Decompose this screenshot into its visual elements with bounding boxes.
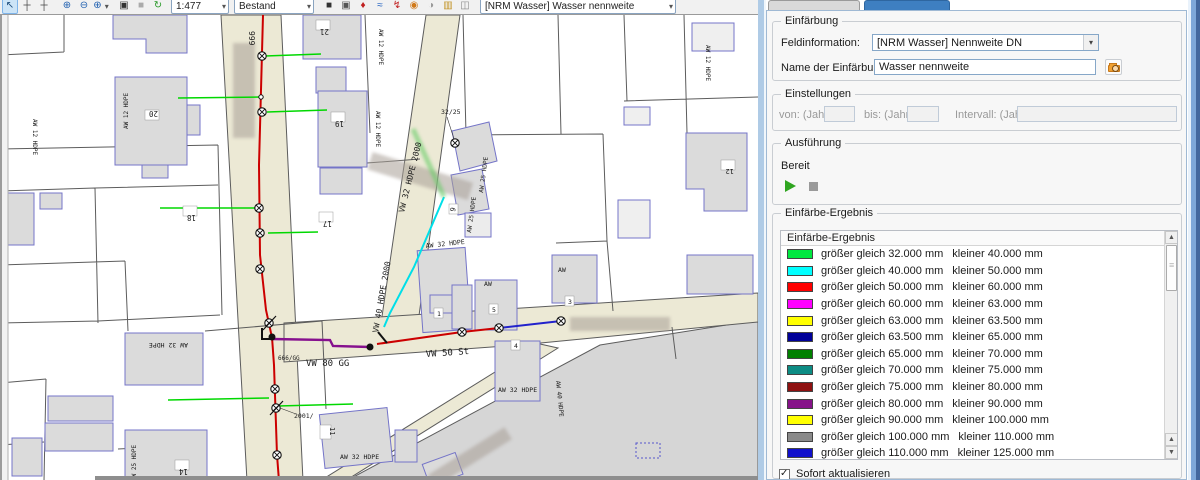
map-label: AW 12 HDPE xyxy=(123,92,130,129)
range-gte: größer gleich 63.500 mm xyxy=(821,331,943,343)
range-gte: größer gleich 50.000 mm xyxy=(821,281,943,293)
color-swatch xyxy=(787,399,813,409)
scroll-up-icon[interactable]: ▲ xyxy=(1165,231,1178,244)
range-gte: größer gleich 90.000 mm xyxy=(821,414,943,426)
range-lt: kleiner 40.000 mm xyxy=(952,248,1043,260)
zoom-menu-button[interactable]: ⊕▾ xyxy=(93,0,109,14)
stop-icon: ■ xyxy=(138,1,144,11)
range-lt: kleiner 75.000 mm xyxy=(952,364,1043,376)
legend-row[interactable]: größer gleich 50.000 mmkleiner 60.000 mm xyxy=(781,279,1164,296)
bis-label: bis: (Jahr) xyxy=(864,109,913,121)
folder-search-icon xyxy=(1108,65,1120,72)
zoom-out-icon: ⊖ xyxy=(80,1,88,11)
temperature-button[interactable]: ♦ xyxy=(355,0,371,14)
waves-icon: ≈ xyxy=(377,1,383,11)
color-swatch xyxy=(787,448,813,458)
legend-row[interactable]: größer gleich 63.500 mmkleiner 65.000 mm xyxy=(781,329,1164,346)
layer-combobox[interactable]: [NRM Wasser] Wasser nennweite▾ xyxy=(480,0,676,14)
range-lt: kleiner 80.000 mm xyxy=(952,381,1043,393)
range-lt: kleiner 100.000 mm xyxy=(952,414,1049,426)
result-list: Einfärbe-Ergebnis größer gleich 32.000 m… xyxy=(780,230,1178,460)
group-ergebnis: Einfärbe-Ergebnis Einfärbe-Ergebnis größ… xyxy=(772,213,1182,479)
map-label: AW xyxy=(484,280,492,288)
range-gte: größer gleich 100.000 mm xyxy=(821,431,949,443)
checkbox-checked-icon[interactable] xyxy=(779,469,790,480)
zoom-in-button[interactable]: ⊕ xyxy=(59,0,75,14)
color-swatch xyxy=(787,249,813,259)
dropdown-arrow-icon: ▾ xyxy=(669,2,673,11)
map-label: 3 xyxy=(568,298,572,306)
map-left-edge xyxy=(0,15,2,480)
map-label: AW xyxy=(558,266,566,274)
snapshot-icon: ■ xyxy=(326,1,332,11)
map-label: AW 12 HDPE xyxy=(31,119,38,156)
mode-value: Bestand xyxy=(239,1,304,12)
map-label: 5 xyxy=(492,306,496,314)
users-button[interactable]: ◫ xyxy=(457,0,473,14)
range-lt: kleiner 90.000 mm xyxy=(952,398,1043,410)
tab-inactive[interactable] xyxy=(768,0,860,10)
color-swatch xyxy=(787,299,813,309)
map-label: 20 xyxy=(148,109,158,118)
range-gte: größer gleich 65.000 mm xyxy=(821,348,943,360)
legend-row[interactable]: größer gleich 100.000 mmkleiner 110.000 … xyxy=(781,429,1164,446)
refresh-icon: ↻ xyxy=(154,1,162,11)
legend-row[interactable]: größer gleich 65.000 mmkleiner 70.000 mm xyxy=(781,346,1164,363)
scale-combobox[interactable]: 1:477▾ xyxy=(171,0,229,14)
color-swatch xyxy=(787,316,813,326)
scroll-down-icon[interactable]: ▼ xyxy=(1165,446,1178,459)
dropdown-arrow-icon[interactable]: ▾ xyxy=(1083,35,1098,50)
range-lt: kleiner 60.000 mm xyxy=(952,281,1043,293)
range-gte: größer gleich 60.000 mm xyxy=(821,298,943,310)
layer-value: [NRM Wasser] Wasser nennweite xyxy=(485,1,666,12)
color-swatch xyxy=(787,266,813,276)
map-label: 2001/ xyxy=(294,412,314,420)
map-label: 14 xyxy=(178,467,188,476)
legend-row[interactable]: größer gleich 63.000 mmkleiner 63.500 mm xyxy=(781,312,1164,329)
range-gte: größer gleich 75.000 mm xyxy=(821,381,943,393)
dropdown-arrow-icon: ▾ xyxy=(222,2,226,11)
columns-icon: ▥ xyxy=(443,1,452,11)
camera-button[interactable]: ▣ xyxy=(338,0,354,14)
info-button[interactable]: ▣ xyxy=(116,0,132,14)
pan-icon: ┼ xyxy=(23,1,30,11)
map-label: AW 32 HDPE xyxy=(498,386,537,394)
splitter[interactable] xyxy=(758,0,766,480)
camera-icon: ▣ xyxy=(341,1,350,11)
range-gte: größer gleich 80.000 mm xyxy=(821,398,943,410)
crosshair-icon: ┼ xyxy=(40,1,47,11)
name-field[interactable]: Wasser nennweite xyxy=(874,59,1096,75)
legend-row[interactable]: größer gleich 40.000 mmkleiner 50.000 mm xyxy=(781,263,1164,280)
app-window: ↖ ┼ ┼ ⊕ ⊖ ⊕▾ ▣ ■ ↻ 1:477▾ Bestand▾ ■ ▣ ♦… xyxy=(0,0,1200,480)
range-gte: größer gleich 40.000 mm xyxy=(821,265,943,277)
von-field[interactable] xyxy=(824,106,855,122)
window-edge xyxy=(1188,0,1200,480)
legend-row[interactable]: größer gleich 90.000 mmkleiner 100.000 m… xyxy=(781,412,1164,429)
range-lt: kleiner 63.500 mm xyxy=(952,315,1043,327)
legend-row[interactable]: größer gleich 110.000 mmkleiner 125.000 … xyxy=(781,445,1164,460)
range-gte: größer gleich 32.000 mm xyxy=(821,248,943,260)
map-label: 4 xyxy=(514,342,518,350)
group-einstellungen: Einstellungen von: (Jahr) bis: (Jahr) In… xyxy=(772,94,1182,131)
coloring-panel: Einfärbung Feldinformation: [NRM Wasser]… xyxy=(766,10,1187,480)
map-horizontal-scrollbar[interactable] xyxy=(95,476,758,480)
legend-row[interactable]: größer gleich 60.000 mmkleiner 63.000 mm xyxy=(781,296,1164,313)
map-label: AW 12 HDPE xyxy=(374,111,381,148)
refresh-button[interactable]: ↻ xyxy=(150,0,166,14)
map-label: 12 xyxy=(726,167,734,175)
dropdown-arrow-icon: ▾ xyxy=(307,2,311,11)
feldinformation-combobox[interactable]: [NRM Wasser] Nennweite DN ▾ xyxy=(872,34,1099,51)
status-text: Bereit xyxy=(781,160,810,172)
feldinformation-value: [NRM Wasser] Nennweite DN xyxy=(873,37,1083,49)
run-button[interactable] xyxy=(785,180,796,192)
color-swatch xyxy=(787,282,813,292)
water-layer-button[interactable]: ≈ xyxy=(372,0,388,14)
palette-button[interactable]: ◑ xyxy=(423,0,439,14)
map-viewport: 999 21 AW 12 HDPE AW 12 HDPE 20 19 AW 12… xyxy=(0,14,758,480)
result-rows: größer gleich 32.000 mmkleiner 40.000 mm… xyxy=(781,246,1164,460)
map-label: AW 25 HDPE xyxy=(131,444,138,480)
map-label: 11 xyxy=(328,427,336,435)
map-label: 21 xyxy=(320,27,329,36)
color-swatch xyxy=(787,382,813,392)
color-swatch xyxy=(787,349,813,359)
group-title: Ausführung xyxy=(781,137,845,149)
map-label: AW 12 HDPE xyxy=(377,29,384,66)
crosshair-tool-button[interactable]: ┼ xyxy=(36,0,52,14)
browse-colorings-button[interactable] xyxy=(1105,59,1122,75)
users-icon: ◫ xyxy=(460,1,469,11)
scroll-up-icon[interactable]: ▲ xyxy=(1165,433,1178,446)
map-label: 17 xyxy=(323,219,332,228)
range-lt: kleiner 65.000 mm xyxy=(952,331,1043,343)
sofort-aktualisieren-label: Sofort aktualisieren xyxy=(796,468,890,480)
legend-row[interactable]: größer gleich 32.000 mmkleiner 40.000 mm xyxy=(781,246,1164,263)
map-label: 18 xyxy=(186,213,196,222)
droplet-icon: ♦ xyxy=(360,1,365,11)
color-swatch xyxy=(787,365,813,375)
map-label: 999 xyxy=(247,31,256,46)
snapshot-button[interactable]: ■ xyxy=(321,0,337,14)
map-label: AW 12 HDPE xyxy=(704,45,711,82)
group-ausfuehrung: Ausführung Bereit xyxy=(772,143,1182,205)
color-swatch xyxy=(787,332,813,342)
range-lt: kleiner 110.000 mm xyxy=(958,431,1054,443)
range-lt: kleiner 125.000 mm xyxy=(958,447,1055,459)
map-label: AW 32 HDPE xyxy=(149,341,188,349)
map-toolbar: ↖ ┼ ┼ ⊕ ⊖ ⊕▾ ▣ ■ ↻ 1:477▾ Bestand▾ ■ ▣ ♦… xyxy=(0,0,758,14)
name-label: Name der Einfärbung: xyxy=(781,62,889,74)
legend-button[interactable]: ▥ xyxy=(440,0,456,14)
color-swatch xyxy=(787,415,813,425)
map-label: 32/25 xyxy=(441,108,461,116)
map-label: VW 80 GG xyxy=(306,359,349,369)
color-swatch xyxy=(787,432,813,442)
range-gte: größer gleich 70.000 mm xyxy=(821,364,943,376)
group-title: Einstellungen xyxy=(781,88,855,100)
globe-button[interactable]: ◉ xyxy=(406,0,422,14)
map-left-strip xyxy=(2,15,8,480)
mode-combobox[interactable]: Bestand▾ xyxy=(234,0,314,14)
result-list-header: Einfärbe-Ergebnis xyxy=(781,231,1164,246)
legend-row[interactable]: größer gleich 70.000 mmkleiner 75.000 mm xyxy=(781,362,1164,379)
bis-field[interactable] xyxy=(907,106,939,122)
map-label: 666/GG xyxy=(278,355,300,362)
zoom-in-icon: ⊕ xyxy=(63,1,71,11)
scroll-thumb[interactable] xyxy=(1166,245,1177,291)
group-title: Einfärbe-Ergebnis xyxy=(781,207,877,219)
map-label: AW 32 HDPE xyxy=(340,453,379,461)
cursor-icon: ↖ xyxy=(6,1,14,11)
scale-value: 1:477 xyxy=(176,1,219,12)
range-gte: größer gleich 63.000 mm xyxy=(821,315,943,327)
info-icon: ▣ xyxy=(119,1,128,11)
legend-row[interactable]: größer gleich 75.000 mmkleiner 80.000 mm xyxy=(781,379,1164,396)
pan-tool-button[interactable]: ┼ xyxy=(19,0,35,14)
range-gte: größer gleich 110.000 mm xyxy=(821,447,949,459)
select-tool-button[interactable]: ↖ xyxy=(2,0,18,14)
range-lt: kleiner 50.000 mm xyxy=(952,265,1043,277)
tab-active[interactable] xyxy=(864,0,950,10)
stop-run-button[interactable] xyxy=(809,182,818,191)
range-lt: kleiner 63.000 mm xyxy=(952,298,1043,310)
dropdown-arrow-icon: ▾ xyxy=(105,2,109,11)
intervall-field[interactable] xyxy=(1017,106,1177,122)
stop-button[interactable]: ■ xyxy=(133,0,149,14)
range-lt: kleiner 70.000 mm xyxy=(952,348,1043,360)
group-title: Einfärbung xyxy=(781,15,842,27)
flash-button[interactable]: ↯ xyxy=(389,0,405,14)
map-canvas[interactable]: 999 21 AW 12 HDPE AW 12 HDPE 20 19 AW 12… xyxy=(0,15,758,480)
result-list-scrollbar[interactable]: ▲ ▲ ▼ xyxy=(1164,231,1177,459)
legend-row[interactable]: größer gleich 80.000 mmkleiner 90.000 mm xyxy=(781,395,1164,412)
group-einfaerbung: Einfärbung Feldinformation: [NRM Wasser]… xyxy=(772,21,1182,81)
map-label: 19 xyxy=(335,119,344,128)
globe-icon: ◉ xyxy=(410,1,419,11)
feldinformation-label: Feldinformation: xyxy=(781,37,860,49)
map-label: 1 xyxy=(437,310,441,318)
palette-icon: ◑ xyxy=(428,1,434,11)
sofort-aktualisieren-row[interactable]: Sofort aktualisieren xyxy=(779,468,890,480)
zoom-out-button[interactable]: ⊖ xyxy=(76,0,92,14)
zoom-menu-icon: ⊕ xyxy=(93,1,101,11)
lightning-icon: ↯ xyxy=(393,1,401,11)
